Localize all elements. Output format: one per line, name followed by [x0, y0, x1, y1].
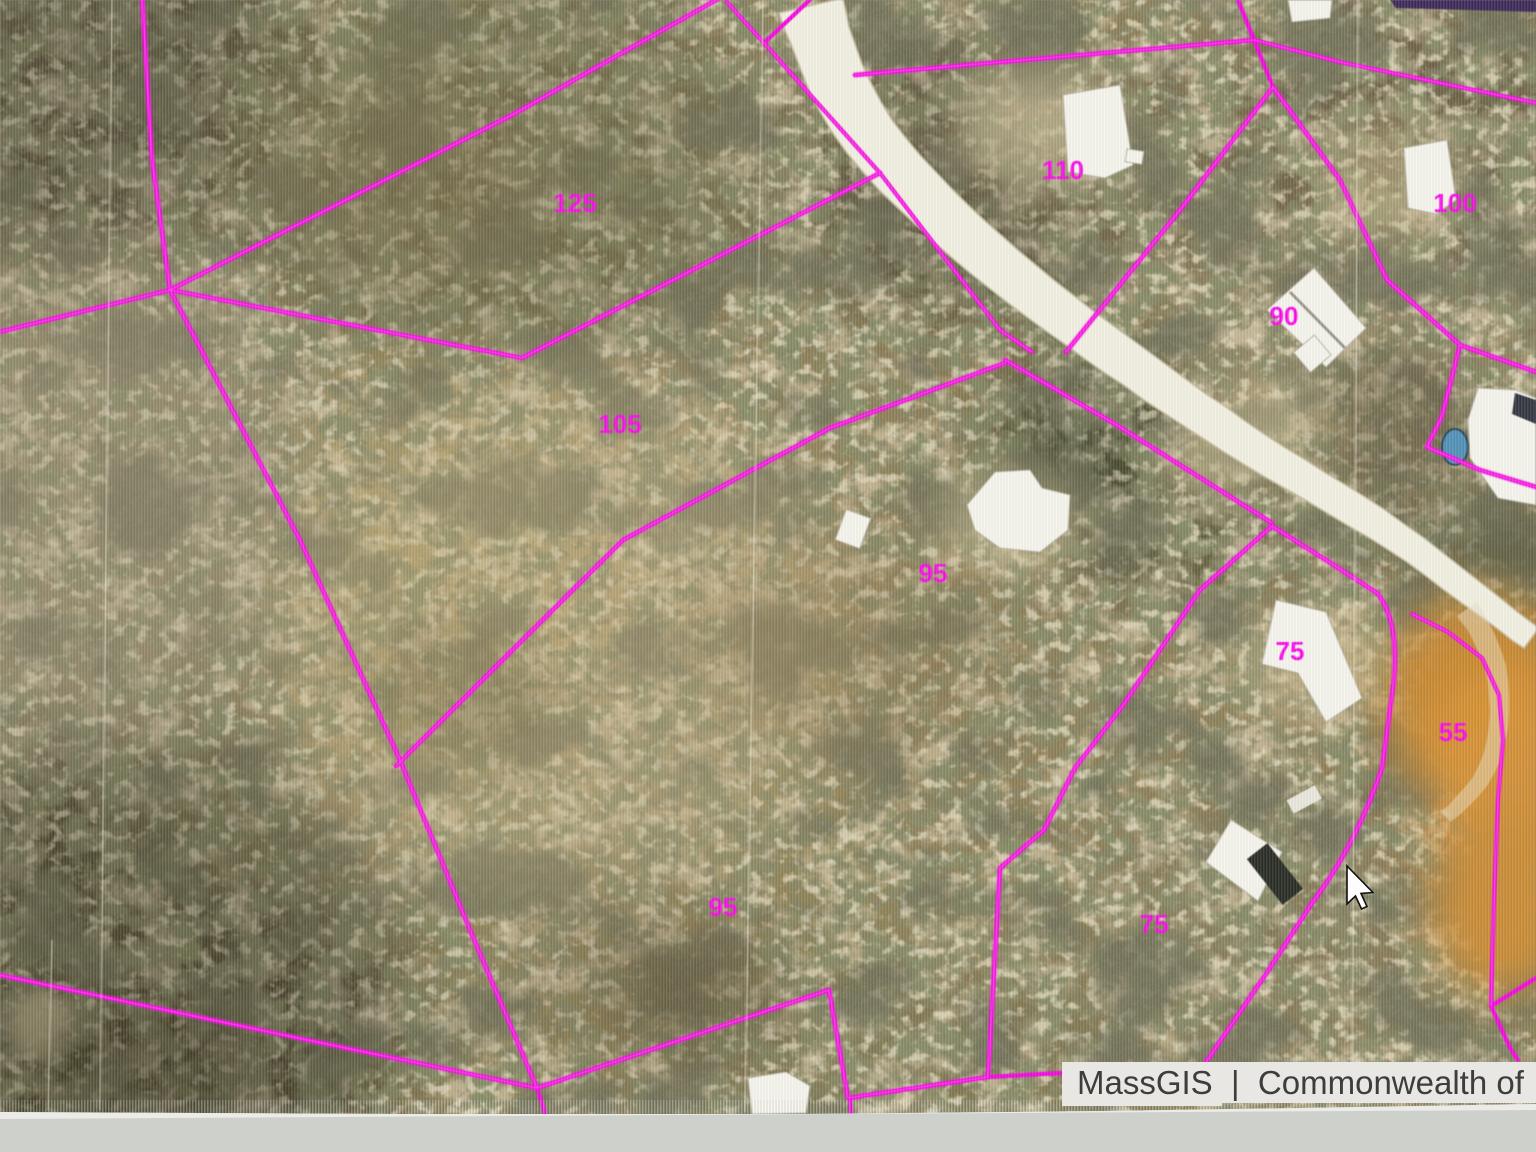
svg-text:75: 75: [1276, 636, 1305, 666]
svg-text:75: 75: [1140, 909, 1169, 939]
svg-text:125: 125: [553, 188, 596, 218]
svg-text:100: 100: [1433, 188, 1476, 218]
svg-text:90: 90: [1270, 301, 1299, 331]
svg-text:55: 55: [1439, 717, 1468, 747]
svg-text:95: 95: [919, 558, 948, 588]
svg-text:95: 95: [709, 892, 738, 922]
svg-text:105: 105: [598, 409, 641, 439]
svg-text:110: 110: [1042, 155, 1084, 185]
